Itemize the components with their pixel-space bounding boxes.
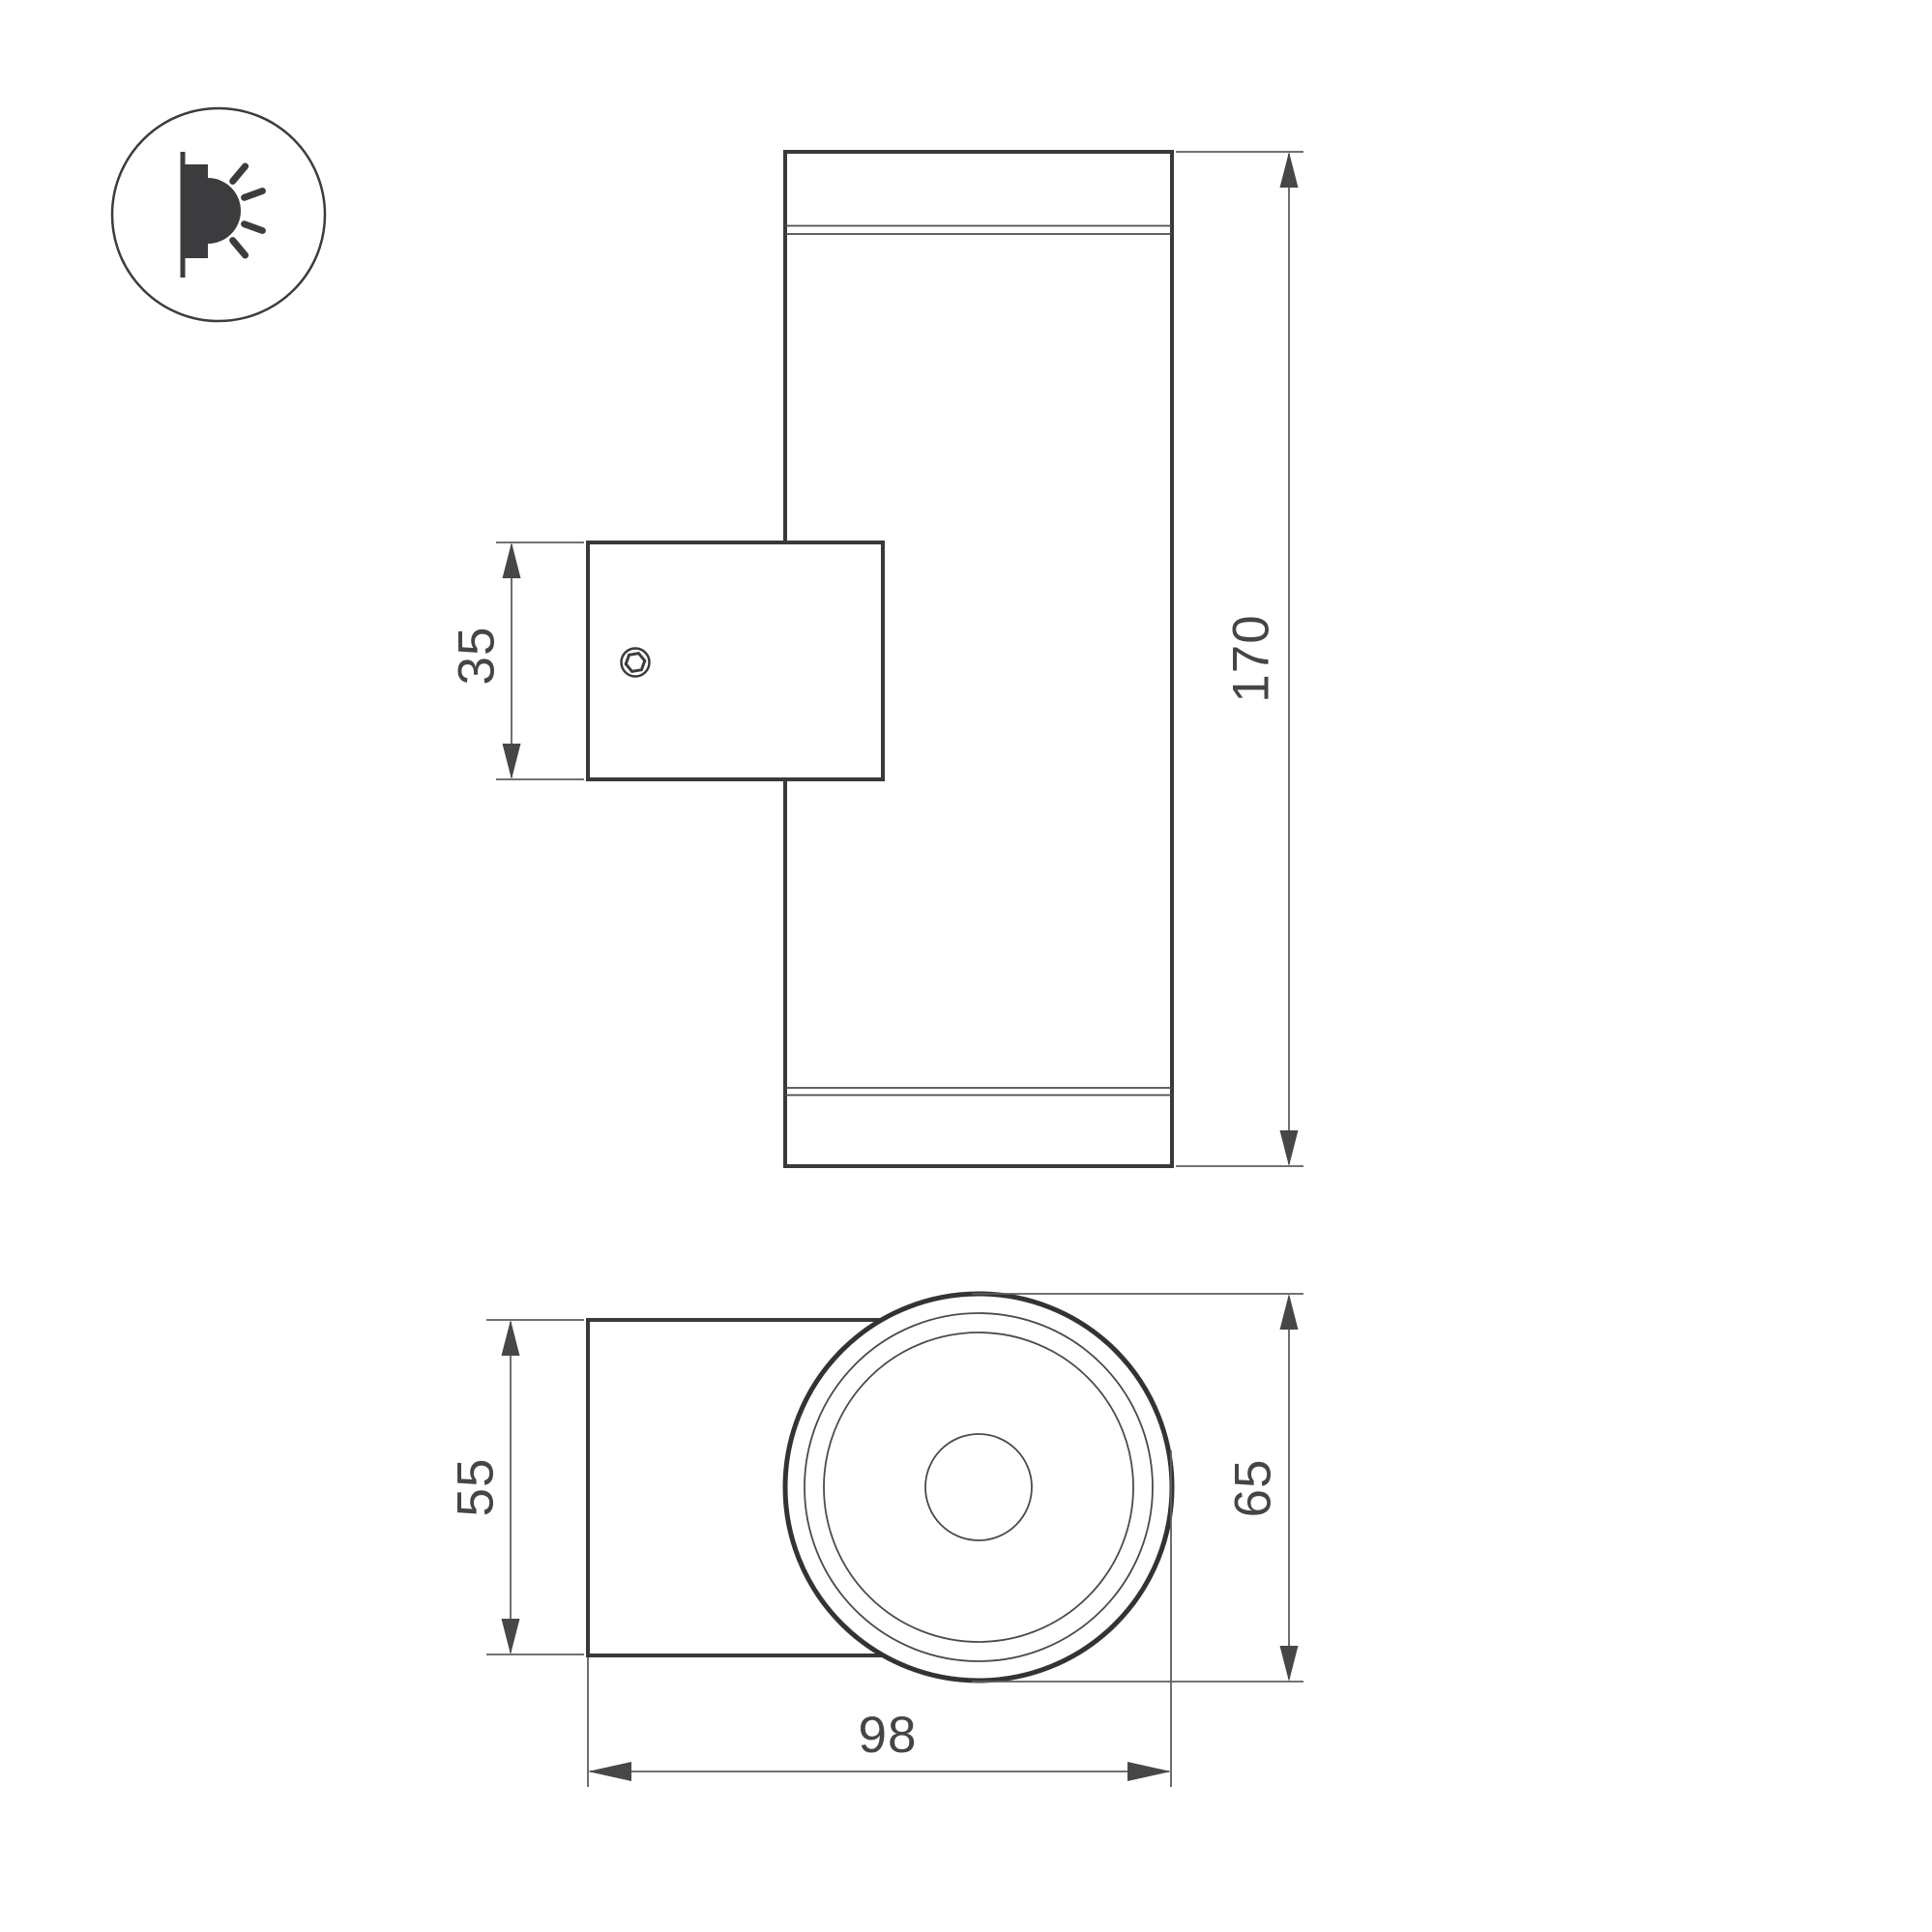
dimension-label-55: 55 [448, 1458, 505, 1517]
dimension-label-35: 35 [449, 627, 506, 686]
lamp-face-outer-ring [785, 1294, 1172, 1681]
side-view [588, 1294, 1172, 1681]
wall-light-icon [112, 108, 325, 321]
dimension-label-98: 98 [859, 1707, 918, 1764]
dimension-label-65: 65 [1225, 1459, 1282, 1518]
icon-lamp-body [185, 164, 208, 258]
dimension-label-170: 170 [1223, 614, 1280, 702]
technical-drawing: 35 170 55 [0, 0, 1932, 1932]
